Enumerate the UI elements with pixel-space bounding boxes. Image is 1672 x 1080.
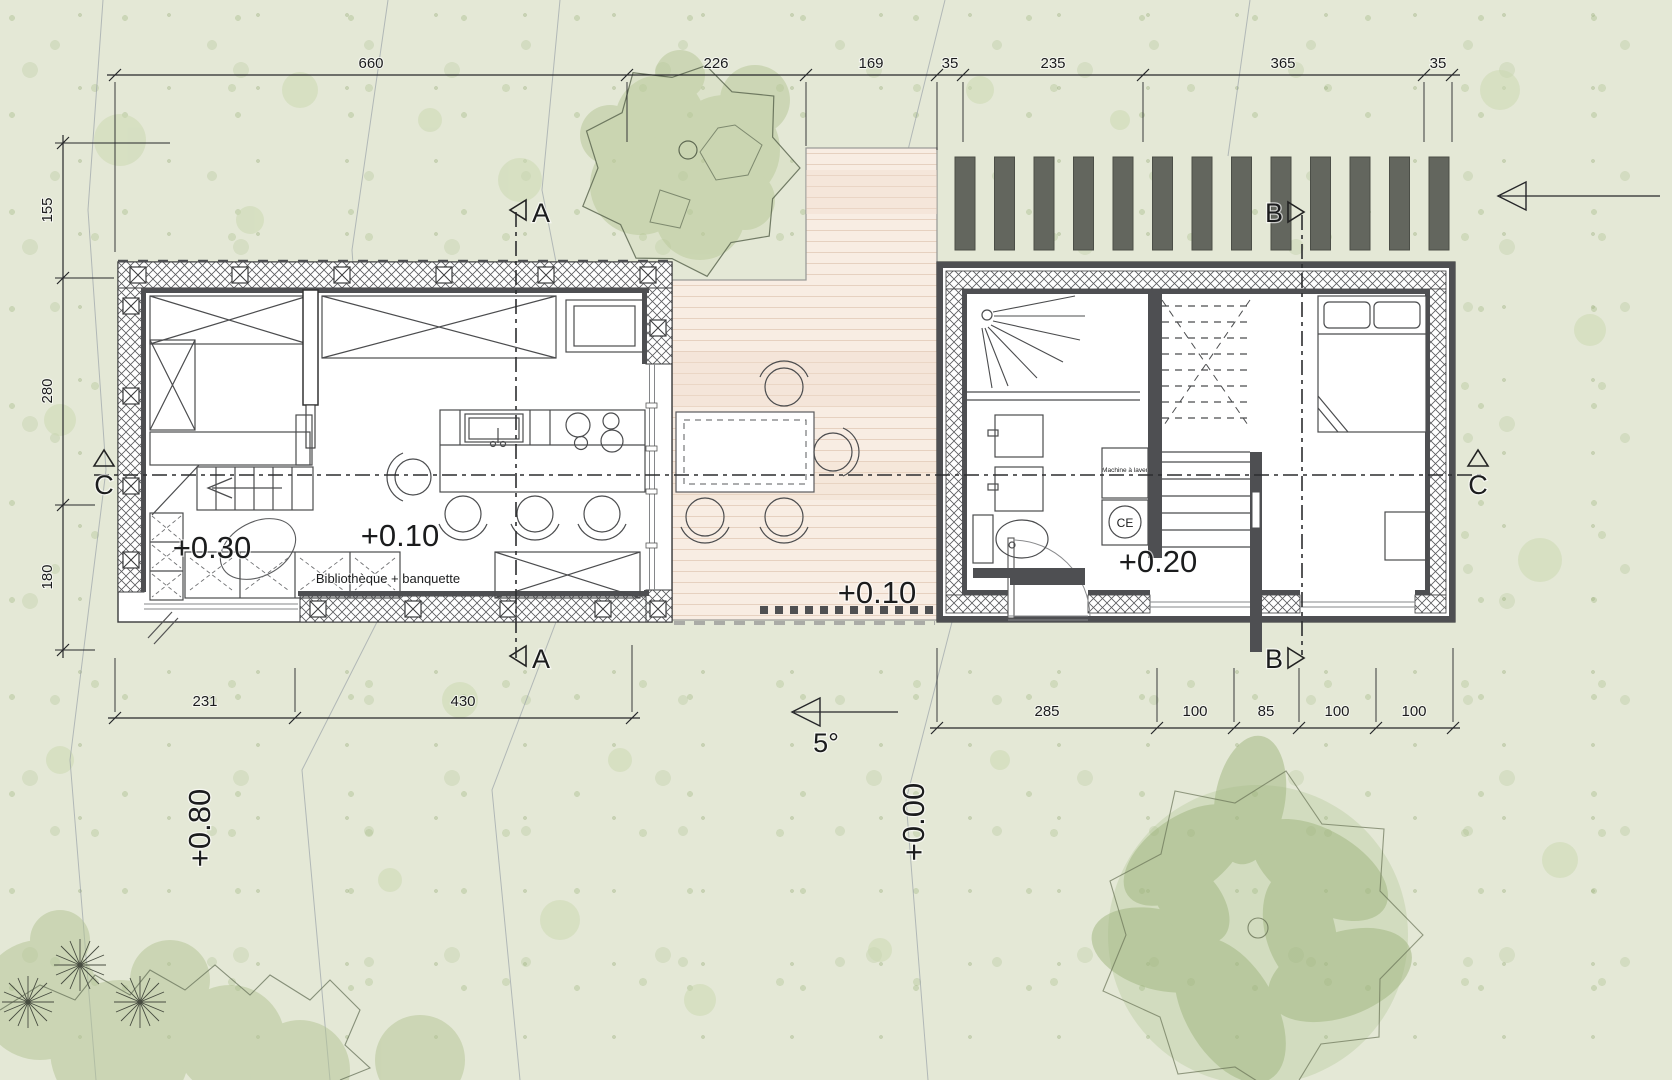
section-c-left-label: C — [94, 470, 114, 500]
level-living: +0.10 — [361, 518, 439, 553]
site-plan: Machine à laver CE A — [0, 0, 1672, 1080]
section-c-right-label: C — [1468, 470, 1488, 500]
dim-bl-231: 231 — [192, 693, 217, 710]
bathroom-bench — [973, 568, 1085, 578]
section-a-bottom-label: A — [532, 644, 550, 674]
washer-label: Machine à laver — [1102, 467, 1149, 474]
kitchen-island — [440, 410, 645, 492]
dim-left-180: 180 — [39, 564, 56, 589]
dim-br-100a: 100 — [1182, 703, 1207, 720]
dim-top-35a: 35 — [942, 55, 959, 72]
section-b-bottom-label: B — [1265, 644, 1283, 674]
shrubs-bottom-left — [0, 910, 465, 1080]
dim-left-155: 155 — [39, 197, 56, 222]
dim-top-226: 226 — [703, 55, 728, 72]
dimension-bottom-left: 231 430 — [108, 645, 640, 724]
tree-bottom-right — [1082, 730, 1425, 1080]
dim-br-100c: 100 — [1401, 703, 1426, 720]
dim-top-169: 169 — [858, 55, 883, 72]
section-a-bottom-triangle — [510, 646, 526, 666]
north-arrow — [1498, 182, 1660, 210]
dim-top-660: 660 — [358, 55, 383, 72]
section-a-top-triangle — [510, 200, 526, 220]
right-building: Machine à laver CE — [937, 262, 1455, 652]
tree-top — [580, 50, 800, 276]
dim-left-280: 280 — [39, 378, 56, 403]
section-c-right-triangle — [1468, 450, 1488, 466]
section-a-top-label: A — [532, 198, 550, 228]
plant-icon — [54, 939, 106, 991]
bathroom-bench2 — [1010, 578, 1085, 585]
dim-top-235: 235 — [1040, 55, 1065, 72]
section-b-top-label: B — [1265, 198, 1283, 228]
level-entry: +0.30 — [173, 530, 251, 565]
left-building — [118, 261, 672, 644]
plant-icon — [2, 976, 54, 1028]
level-terrain-left: +0.80 — [182, 789, 217, 867]
louver-slats — [955, 157, 1449, 250]
bed-icon — [1318, 296, 1426, 432]
level-night: +0.20 — [1119, 544, 1197, 579]
dim-top-35b: 35 — [1430, 55, 1447, 72]
level-terrain-right: +0.00 — [896, 783, 931, 861]
dimension-bottom-right: 285 100 85 100 100 — [930, 648, 1460, 734]
water-heater-label: CE — [1117, 516, 1134, 530]
dim-br-100b: 100 — [1324, 703, 1349, 720]
floor-plan-drawing: Machine à laver CE A — [0, 0, 1672, 1080]
section-c-left-triangle — [94, 450, 114, 466]
plant-icon — [114, 976, 166, 1028]
dim-top-365: 365 — [1270, 55, 1295, 72]
slope-arrow: 5° — [792, 698, 898, 758]
bathroom-partition — [1148, 290, 1162, 558]
level-terrace: +0.10 — [838, 575, 916, 610]
dim-bl-430: 430 — [450, 693, 475, 710]
slope-angle-label: 5° — [813, 728, 839, 758]
dim-br-285: 285 — [1034, 703, 1059, 720]
library-bench-label: Bibliothèque + banquette — [316, 571, 460, 586]
dim-br-85: 85 — [1258, 703, 1275, 720]
